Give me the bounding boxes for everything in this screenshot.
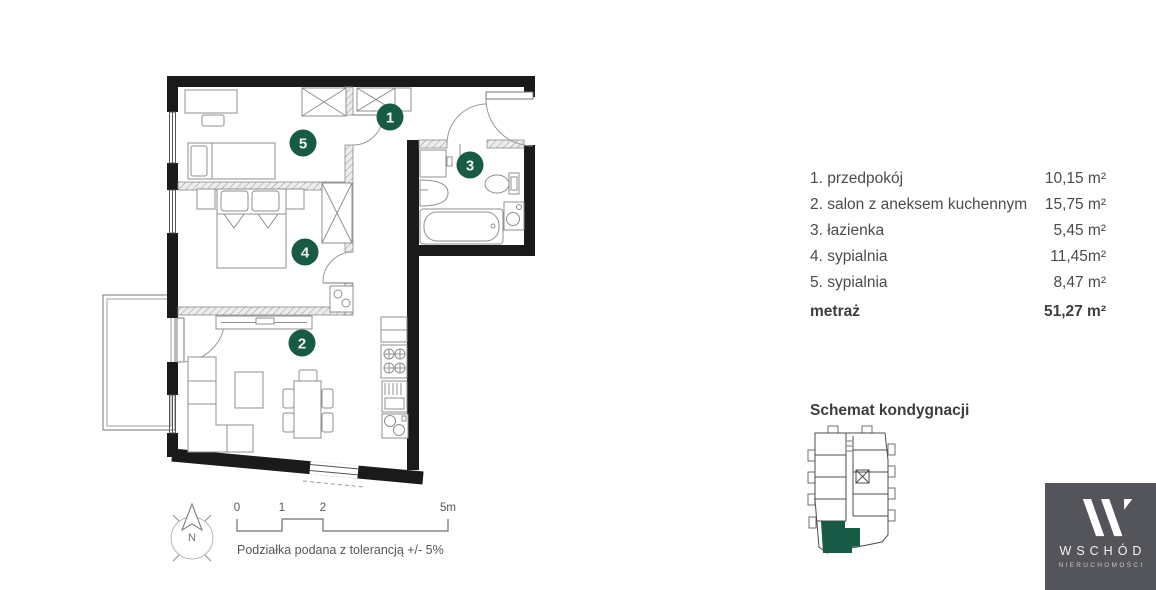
entrance-door: [486, 92, 533, 146]
nightstand: [286, 189, 304, 209]
room-marker-1: 1: [377, 104, 404, 131]
stove: [381, 345, 407, 378]
room-label: 4. sypialnia: [810, 244, 888, 270]
logo-w-icon: [1068, 495, 1134, 541]
window-bottom: [303, 465, 364, 488]
bathtub: [420, 209, 503, 244]
company-logo: WSCHÓD NIERUCHOMOŚCI: [1045, 483, 1156, 590]
room-label: 2. salon z aneksem kuchennym: [810, 192, 1027, 218]
window-room5: [170, 112, 176, 163]
double-bed: [217, 189, 286, 268]
room-area: 8,47 m²: [1053, 270, 1106, 296]
total-label: metraż: [810, 299, 860, 325]
room-area: 5,45 m²: [1053, 218, 1106, 244]
room-marker-4: 4: [292, 239, 319, 266]
svg-text:4: 4: [301, 245, 310, 262]
highlighted-unit: [821, 521, 860, 553]
wardrobe: [302, 88, 346, 116]
legend-row: 4. sypialnia 11,45m²: [810, 244, 1106, 270]
scale-bar: 0 1 2 5m: [234, 502, 456, 531]
fridge: [382, 381, 407, 412]
svg-text:5: 5: [299, 136, 307, 153]
svg-text:1: 1: [386, 110, 394, 127]
room-label: 5. sypialnia: [810, 270, 888, 296]
svg-text:5m: 5m: [440, 502, 456, 514]
desk: [185, 90, 237, 126]
legend-row: 2. salon z aneksem kuchennym 15,75 m²: [810, 192, 1106, 218]
room-label: 3. łazienka: [810, 218, 884, 244]
logo-title: WSCHÓD: [1060, 544, 1147, 558]
legend-row: 1. przedpokój 10,15 m²: [810, 166, 1106, 192]
total-area: 51,27 m²: [1044, 299, 1106, 325]
schematic-title: Schemat kondygnacji: [810, 402, 969, 420]
room-area: 11,45m²: [1050, 244, 1106, 270]
floor-schematic-map: [808, 426, 895, 553]
legend-row: 3. łazienka 5,45 m²: [810, 218, 1106, 244]
bath-cabinet: [420, 150, 452, 177]
dining-table-set: [283, 370, 333, 438]
nightstand: [197, 189, 215, 209]
washing-machine: [504, 202, 524, 230]
coffee-table: [235, 372, 263, 408]
toilet: [485, 173, 519, 194]
scale-tolerance-note: Podziałka podana z tolerancją +/- 5%: [237, 543, 444, 557]
furniture-room4: [197, 183, 352, 268]
floor-plan: 1 5 3 4 2: [103, 76, 535, 487]
room-label: 1. przedpokój: [810, 166, 903, 192]
svg-text:N: N: [188, 532, 196, 544]
tv-sideboard: [216, 316, 312, 329]
logo-subtitle: NIERUCHOMOŚCI: [1059, 562, 1145, 569]
single-bed: [188, 143, 275, 179]
exterior-walls: [167, 76, 535, 478]
room-marker-3: 3: [457, 152, 484, 179]
sink: [420, 180, 448, 206]
kitchen-sink: [382, 414, 408, 438]
room-legend: 1. przedpokój 10,15 m² 2. salon z anekse…: [810, 166, 1106, 325]
balcony: [103, 295, 175, 430]
window-room4: [170, 190, 176, 233]
room-marker-5: 5: [290, 130, 317, 157]
furniture-room5: [185, 88, 346, 179]
svg-text:3: 3: [466, 158, 474, 175]
svg-text:2: 2: [298, 336, 306, 353]
svg-text:2: 2: [320, 502, 326, 514]
wardrobe: [322, 183, 352, 243]
room-marker-2: 2: [289, 330, 316, 357]
north-arrow-icon: [182, 504, 202, 530]
kitchen-cabinet: [381, 317, 407, 342]
room4-door: [323, 252, 353, 283]
svg-text:1: 1: [279, 502, 285, 514]
legend-total-row: metraż 51,27 m²: [810, 299, 1106, 325]
room-area: 10,15 m²: [1045, 166, 1106, 192]
svg-text:0: 0: [234, 502, 240, 514]
kitchen-corner-unit: [330, 286, 353, 312]
legend-row: 5. sypialnia 8,47 m²: [810, 270, 1106, 296]
room-area: 15,75 m²: [1045, 192, 1106, 218]
compass: N: [171, 504, 213, 561]
